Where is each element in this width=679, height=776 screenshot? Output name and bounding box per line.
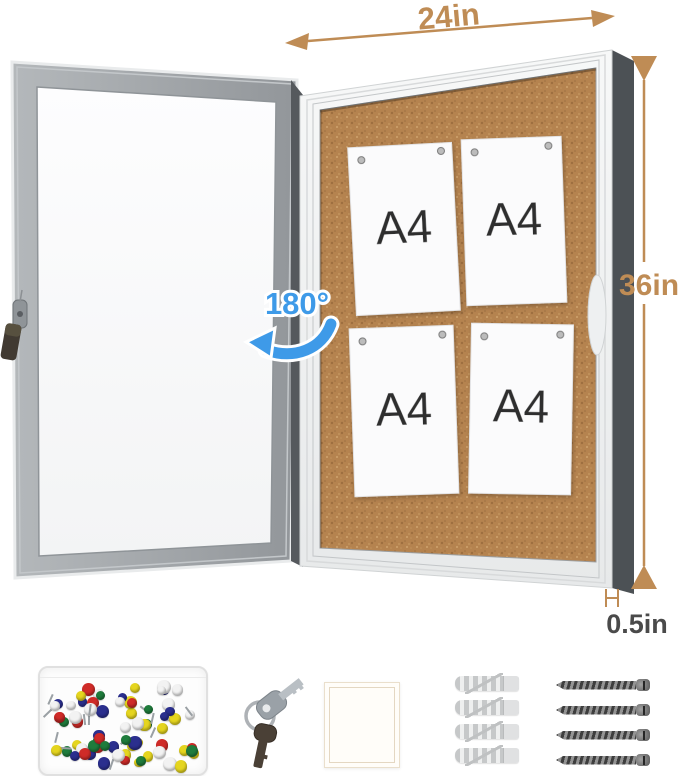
dark-key [247,722,278,770]
push-pin [96,705,110,719]
push-pin [172,684,184,696]
push-pin [120,722,131,733]
a4-label: A4 [485,192,543,246]
screw-head [636,754,650,766]
push-pin [130,683,140,693]
pin-needle [83,714,86,725]
finger-pull-notch [588,275,606,355]
pushpin-fill [40,668,206,774]
a4-paper: A4 [469,323,574,495]
push-pin [545,142,552,149]
push-pin [115,697,125,707]
push-pin [157,723,169,735]
screw [556,729,650,741]
arrow-up-icon [631,565,657,589]
screw-head [636,729,650,741]
arrow-left-icon [285,33,309,50]
push-pin [50,701,59,710]
push-pin [175,760,188,773]
push-pin [69,711,82,724]
keys-photo [220,666,320,772]
arrow-down-icon [631,56,657,81]
push-pin [136,756,146,766]
push-pin [98,757,111,770]
wall-anchor [455,700,519,715]
screw-shaft [556,756,636,765]
mounting-screws [556,679,650,766]
thickness-bracket-icon [606,589,618,607]
a4-paper: A4 [349,325,459,497]
pin-needle [43,709,52,718]
push-pin [186,745,198,757]
a4-label: A4 [492,380,549,433]
pin-needle [151,713,155,724]
push-pin [471,149,478,156]
screw [556,679,650,691]
pin-needle [150,727,156,738]
screw-head [636,679,650,691]
width-dimension: 24in [285,0,615,50]
screw [556,704,650,716]
a4-label: A4 [374,200,433,255]
screw-shaft [556,731,636,740]
push-pin [153,746,166,759]
gray-key [253,673,308,722]
pin-needle [55,732,59,743]
a4-label: A4 [375,382,433,436]
screw-shaft [556,706,636,715]
push-pin [439,331,446,338]
push-pin [481,333,488,340]
pushpin-box [38,666,208,776]
width-label: 24in [416,0,481,37]
push-pin [358,156,365,163]
push-pin [79,748,91,760]
cabinet-side-panel [612,50,634,594]
a4-paper: A4 [461,136,567,305]
board-drawing: A4 A4 A4 A4 24in [0,0,679,776]
cabinet [300,50,634,594]
push-pin [66,701,75,710]
push-pin [437,147,444,154]
wall-anchors [455,676,519,763]
rotation-label: 180° [265,286,329,321]
white-square-pad [324,682,400,768]
thickness-dimension: 0.5in [606,589,668,639]
push-pin [76,691,86,701]
push-pin [127,698,138,709]
push-pin [557,331,564,338]
push-pin [359,338,366,345]
wall-anchor [455,724,519,739]
keys-icon [220,666,320,772]
thickness-label: 0.5in [606,609,668,639]
arrow-right-icon [591,10,615,27]
screw-head [636,704,650,716]
screw-shaft [556,681,636,690]
push-pin [96,691,105,700]
push-pin [132,717,144,729]
product-illustration: A4 A4 A4 A4 24in [0,0,679,776]
height-label: 36in [619,269,679,302]
wall-anchor [455,676,519,691]
a4-paper: A4 [348,142,461,315]
wall-anchor [455,748,519,763]
screw [556,754,650,766]
push-pin [51,745,62,756]
open-glass-door [12,62,297,578]
